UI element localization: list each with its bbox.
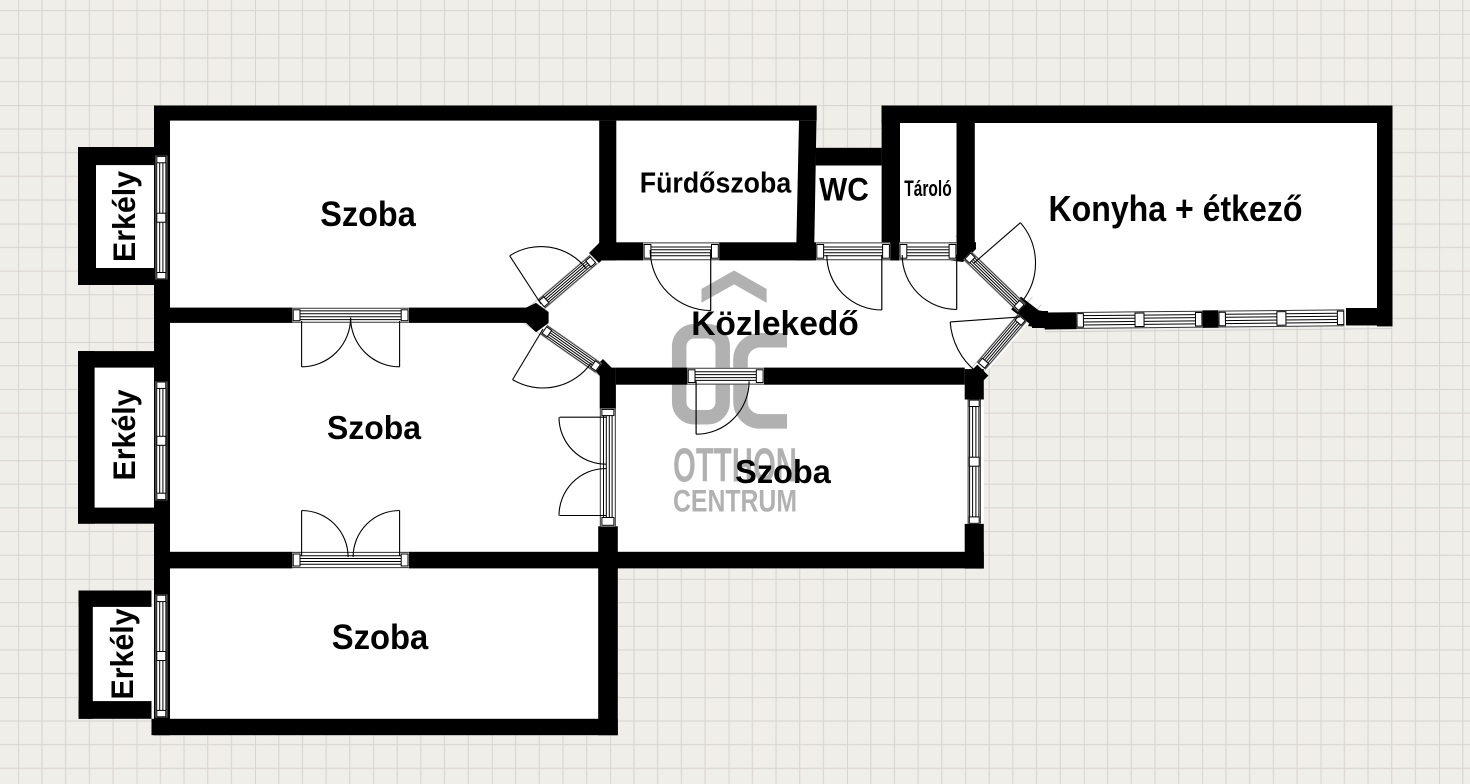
svg-text:Szoba: Szoba: [320, 195, 416, 234]
svg-text:Konyha + étkező: Konyha + étkező: [1049, 188, 1303, 229]
svg-text:Fürdőszoba: Fürdőszoba: [640, 168, 792, 200]
svg-text:WC: WC: [819, 172, 869, 208]
svg-text:Szoba: Szoba: [735, 453, 831, 490]
svg-text:Erkély: Erkély: [106, 389, 142, 480]
svg-text:Szoba: Szoba: [327, 409, 422, 446]
svg-text:Közlekedő: Közlekedő: [691, 305, 859, 343]
svg-text:Erkély: Erkély: [106, 171, 142, 262]
svg-text:Tároló: Tároló: [904, 176, 951, 201]
svg-text:Szoba: Szoba: [332, 618, 429, 657]
svg-text:Erkély: Erkély: [104, 608, 140, 699]
